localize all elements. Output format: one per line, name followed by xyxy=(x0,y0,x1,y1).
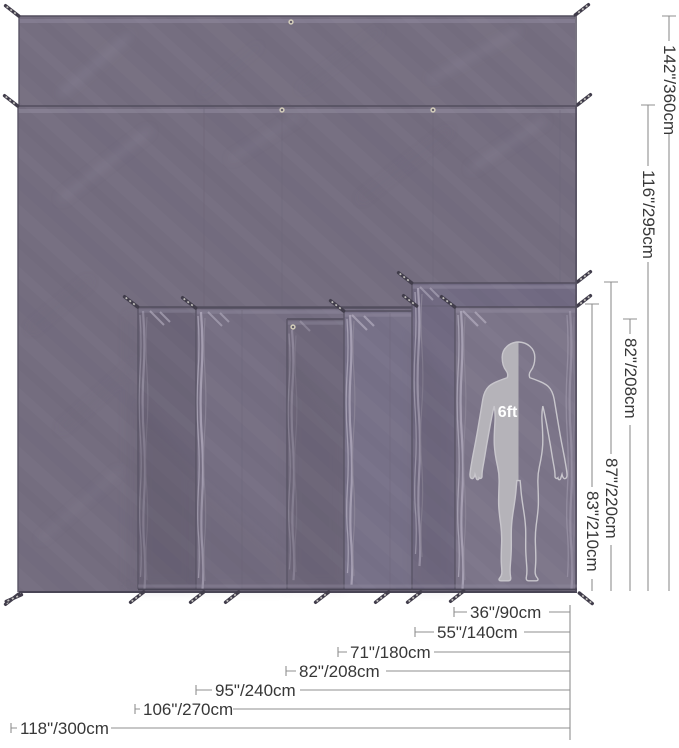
svg-text:82"/208cm: 82"/208cm xyxy=(299,662,380,681)
svg-text:82"/208cm: 82"/208cm xyxy=(621,338,640,419)
svg-text:87"/220cm: 87"/220cm xyxy=(602,458,621,539)
svg-text:118"/300cm: 118"/300cm xyxy=(20,719,109,738)
svg-text:106"/270cm: 106"/270cm xyxy=(143,700,233,719)
svg-text:71"/180cm: 71"/180cm xyxy=(350,643,431,662)
svg-text:55"/140cm: 55"/140cm xyxy=(437,623,518,642)
svg-text:83"/210cm: 83"/210cm xyxy=(583,491,602,572)
svg-text:6ft: 6ft xyxy=(498,404,518,421)
svg-text:95"/240cm: 95"/240cm xyxy=(215,681,296,700)
svg-text:116"/295cm: 116"/295cm xyxy=(639,170,658,259)
svg-text:36"/90cm: 36"/90cm xyxy=(470,603,541,622)
svg-text:142"/360cm: 142"/360cm xyxy=(660,45,679,135)
